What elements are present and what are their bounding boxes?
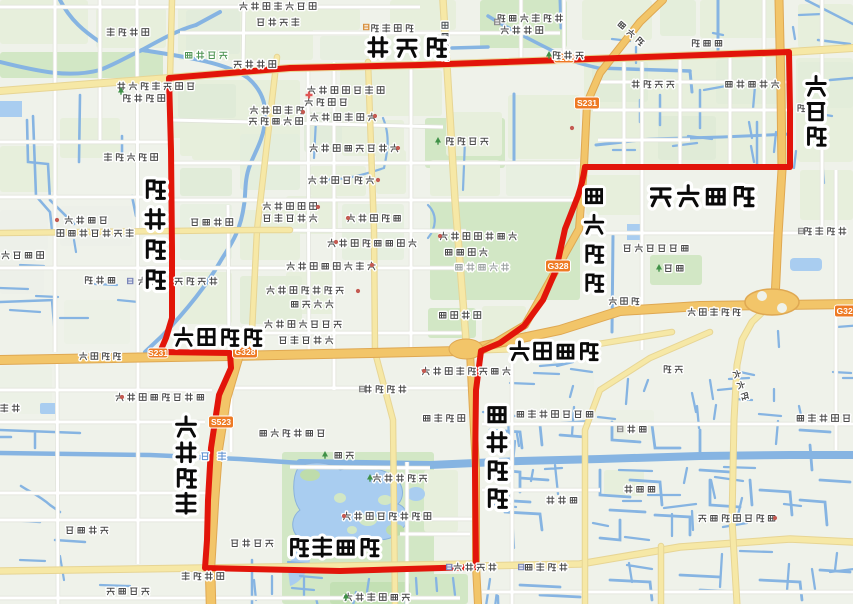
svg-text:S231: S231	[148, 348, 168, 358]
svg-text:G328: G328	[547, 261, 568, 271]
svg-text:G328: G328	[836, 306, 853, 316]
svg-text:S523: S523	[211, 417, 231, 427]
svg-text:S231: S231	[577, 98, 597, 108]
